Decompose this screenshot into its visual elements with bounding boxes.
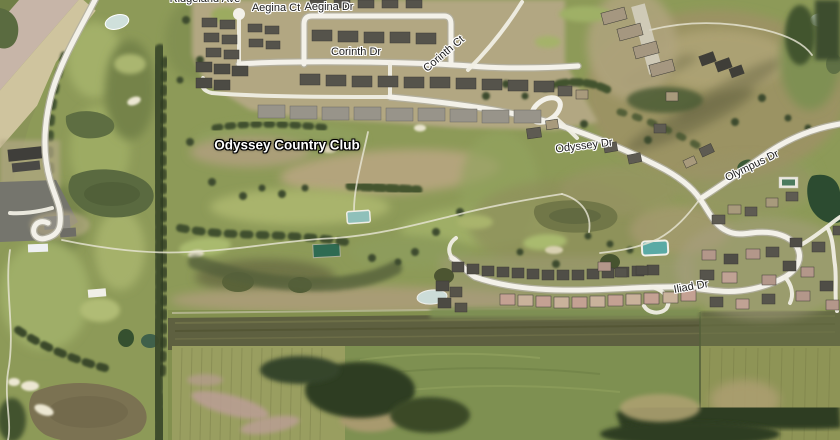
farm-fields-south (168, 309, 840, 440)
road-label-corinth-dr: Corinth Dr (331, 46, 381, 58)
poi-label-odyssey-country-club: Odyssey Country Club (214, 138, 360, 153)
satellite-map-viewport[interactable]: Ridgeland Ave Aegina Ct Aegina Dr Corint… (0, 0, 840, 440)
road-label-aegina-dr: Aegina Dr (305, 1, 354, 13)
satellite-imagery (0, 0, 840, 440)
road-label-aegina-ct: Aegina Ct (252, 2, 300, 14)
road-label-ridgeland-ave: Ridgeland Ave (170, 0, 241, 5)
